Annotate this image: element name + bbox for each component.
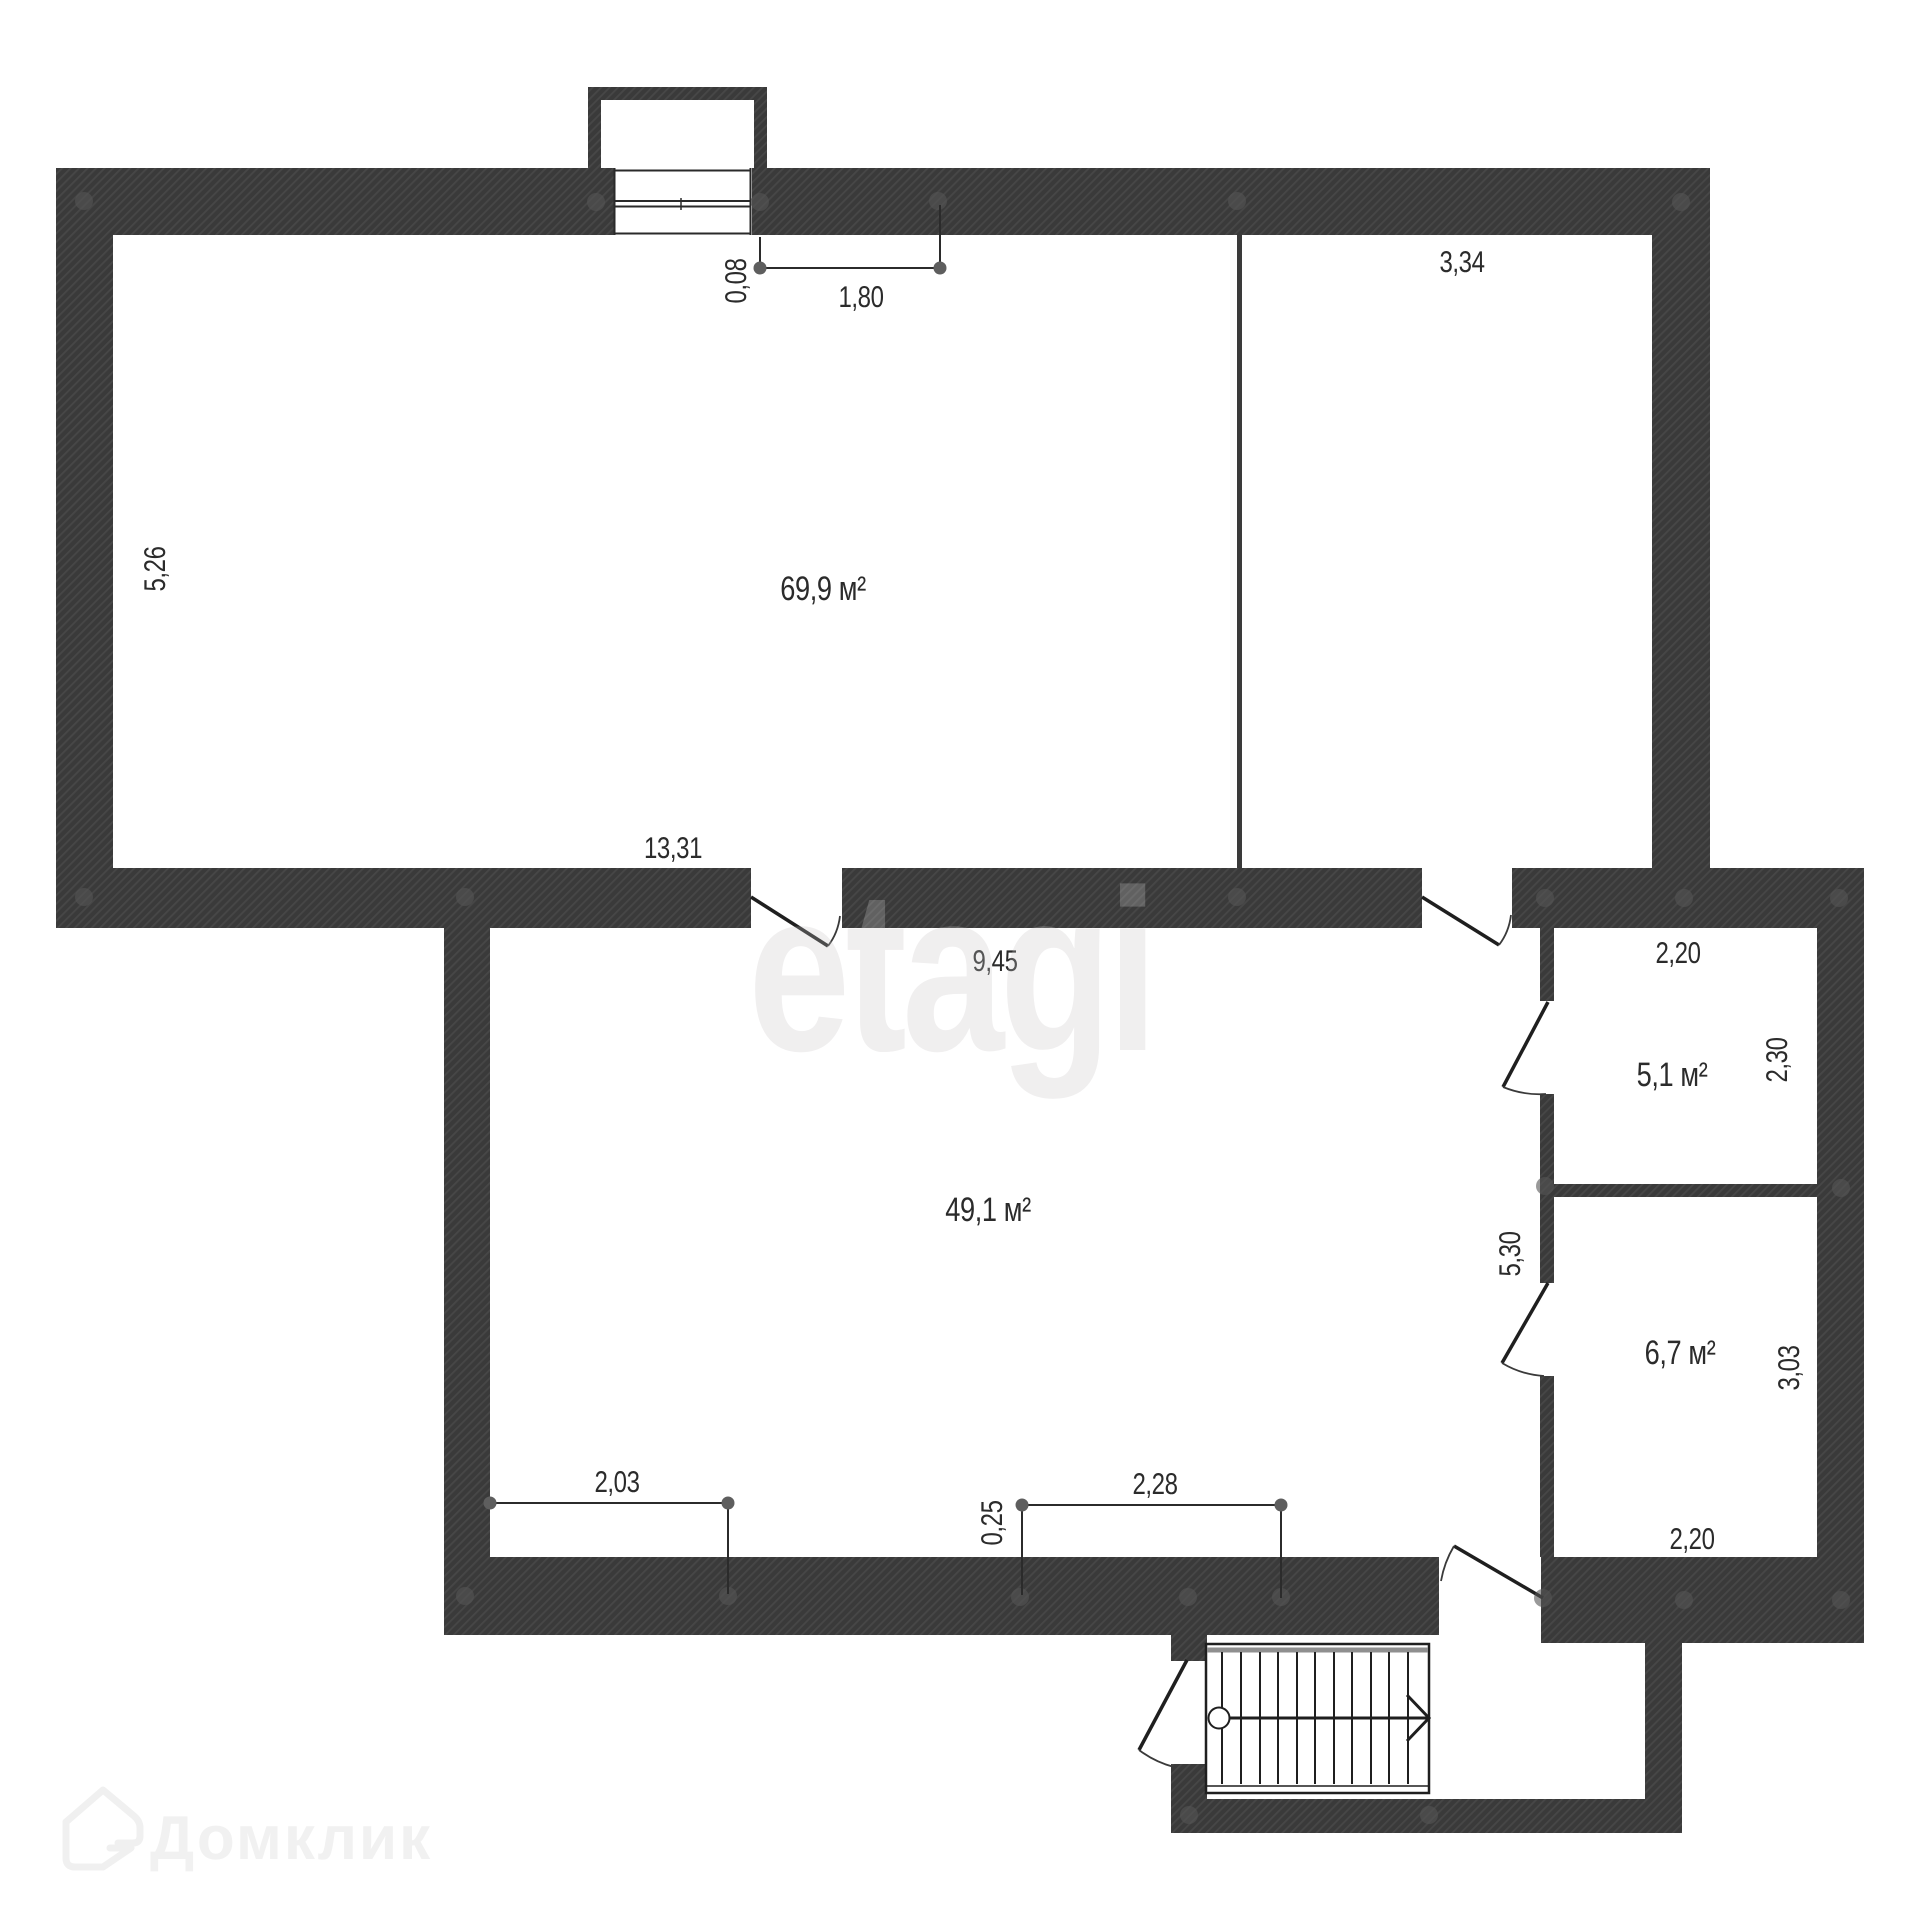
- svg-text:49,1 м²: 49,1 м²: [945, 1191, 1031, 1229]
- svg-text:13,31: 13,31: [644, 832, 702, 865]
- svg-text:1,80: 1,80: [838, 281, 883, 314]
- svg-text:2,03: 2,03: [594, 1466, 639, 1499]
- svg-text:5,1 м²: 5,1 м²: [1637, 1056, 1708, 1094]
- svg-text:5,26: 5,26: [139, 546, 172, 591]
- svg-text:2,20: 2,20: [1669, 1523, 1714, 1556]
- svg-text:etagi: etagi: [748, 842, 1153, 1099]
- svg-text:0,25: 0,25: [976, 1500, 1009, 1545]
- svg-text:2,30: 2,30: [1761, 1037, 1794, 1082]
- svg-text:2,20: 2,20: [1655, 937, 1700, 970]
- svg-text:3,03: 3,03: [1773, 1345, 1806, 1390]
- svg-text:3,34: 3,34: [1439, 246, 1484, 279]
- svg-text:0,08: 0,08: [720, 258, 753, 303]
- svg-text:5,30: 5,30: [1494, 1231, 1527, 1276]
- svg-text:2,28: 2,28: [1132, 1468, 1177, 1501]
- svg-text:6,7 м²: 6,7 м²: [1645, 1334, 1716, 1372]
- svg-text:69,9 м²: 69,9 м²: [780, 570, 866, 608]
- svg-text:Домклик: Домклик: [150, 1804, 432, 1873]
